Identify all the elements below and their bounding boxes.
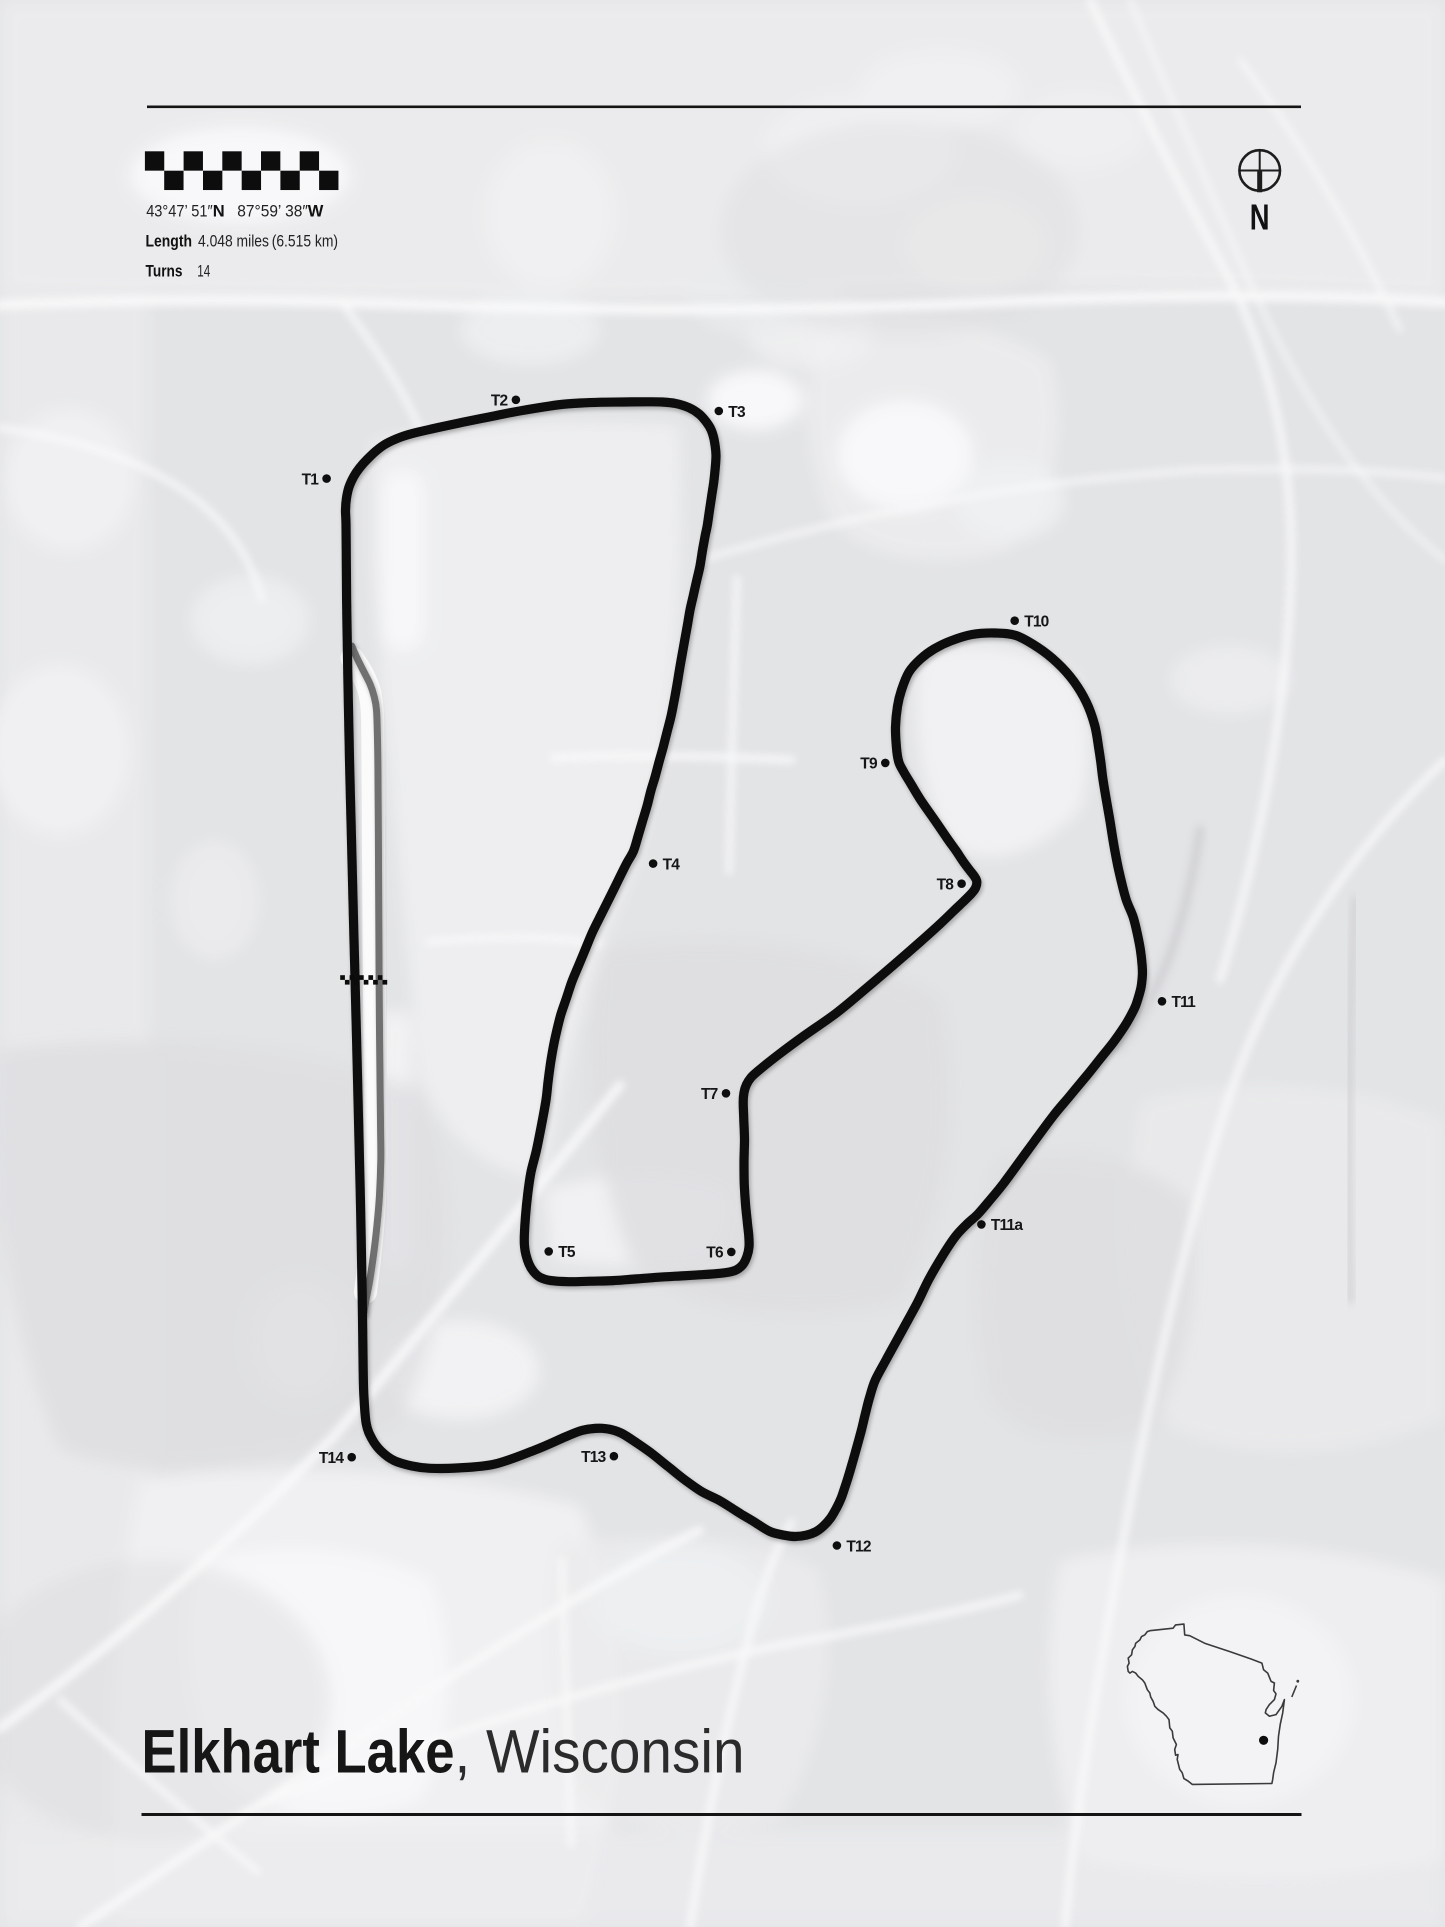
svg-text:W: W — [308, 203, 324, 221]
svg-text:T2: T2 — [491, 393, 508, 410]
svg-text:T1: T1 — [302, 471, 320, 488]
svg-text:Elkhart Lake: Elkhart Lake — [142, 1718, 455, 1786]
svg-text:T6: T6 — [706, 1245, 724, 1262]
svg-text:T11a: T11a — [991, 1217, 1023, 1234]
svg-text:87°59’ 38″: 87°59’ 38″ — [237, 203, 308, 221]
svg-text:T14: T14 — [319, 1450, 344, 1467]
svg-text:T12: T12 — [846, 1538, 870, 1555]
svg-text:N: N — [213, 203, 225, 221]
svg-text:T7: T7 — [701, 1086, 718, 1103]
svg-text:T9: T9 — [860, 756, 878, 773]
svg-text:T11: T11 — [1172, 994, 1197, 1011]
svg-text:T3: T3 — [728, 404, 746, 421]
svg-text:T5: T5 — [558, 1244, 576, 1261]
svg-text:4.048 miles (6.515 km): 4.048 miles (6.515 km) — [198, 233, 338, 251]
svg-text:Turns: Turns — [146, 263, 183, 281]
svg-text:T10: T10 — [1024, 614, 1048, 631]
svg-text:14: 14 — [197, 263, 210, 281]
svg-text:T8: T8 — [937, 877, 955, 894]
svg-text:N: N — [1250, 197, 1270, 238]
svg-text:Length: Length — [146, 233, 193, 251]
svg-text:43°47’ 51″: 43°47’ 51″ — [146, 203, 213, 221]
svg-text:T13: T13 — [581, 1449, 606, 1466]
svg-text:, Wisconsin: , Wisconsin — [455, 1718, 745, 1786]
svg-text:T4: T4 — [663, 856, 681, 873]
